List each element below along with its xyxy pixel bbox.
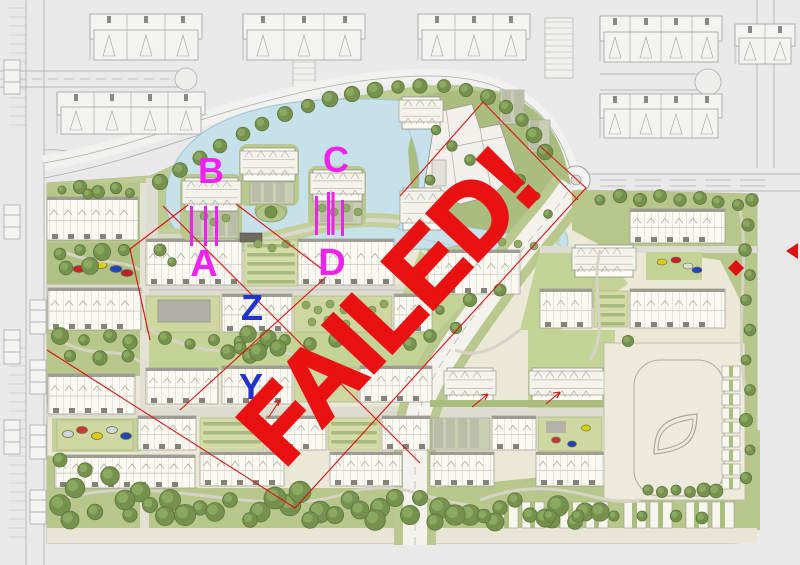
svg-text:A: A (190, 243, 217, 285)
svg-text:C: C (323, 139, 349, 180)
svg-text:Z: Z (241, 287, 263, 328)
svg-text:B: B (198, 150, 224, 191)
